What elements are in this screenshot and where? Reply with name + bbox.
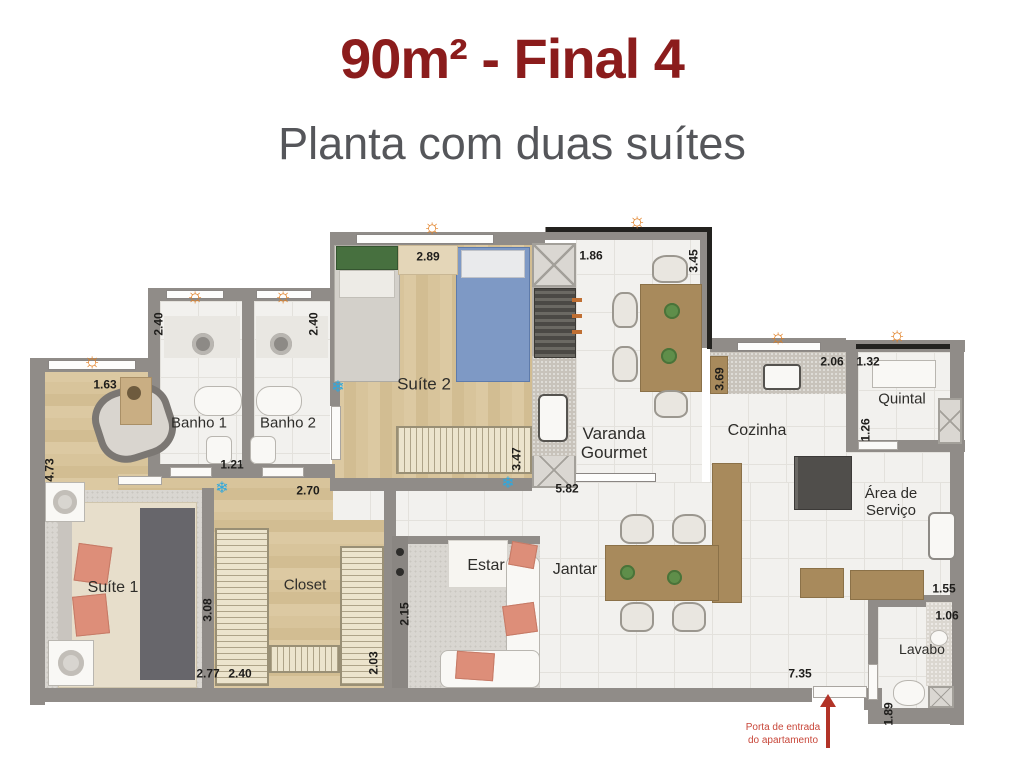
annotations-layer: Banho 1Banho 2Suíte 2Varanda GourmetCozi… [0, 0, 1024, 767]
measurement-2.06: 2.06 [820, 355, 843, 368]
room-label-cozinha: Cozinha [728, 422, 787, 440]
measurement-2.40: 2.40 [307, 312, 320, 335]
sun-icon: ☼ [423, 216, 441, 238]
measurement-7.35: 7.35 [788, 667, 811, 680]
measurement-2.77: 2.77 [196, 667, 219, 680]
room-label-lavabo: Lavabo [899, 642, 945, 658]
measurement-1.06: 1.06 [935, 609, 958, 622]
measurement-1.32: 1.32 [856, 355, 879, 368]
measurement-4.73: 4.73 [43, 458, 56, 481]
measurement-1.26: 1.26 [859, 418, 872, 441]
measurement-1.89: 1.89 [882, 702, 895, 725]
measurement-2.40: 2.40 [228, 667, 251, 680]
snowflake-icon: ❄ [501, 475, 514, 493]
room-label-varanda-gourmet: Varanda Gourmet [581, 424, 647, 462]
measurement-5.82: 5.82 [555, 482, 578, 495]
room-label-suite-2: Suíte 2 [397, 374, 451, 393]
measurement-1.86: 1.86 [579, 249, 602, 262]
measurement-2.15: 2.15 [398, 602, 411, 625]
page: 90m² - Final 4 Planta com duas suítes [0, 0, 1024, 767]
sun-icon: ☼ [888, 324, 906, 346]
room-label-jantar: Jantar [553, 561, 597, 579]
room-label-quintal: Quintal [878, 392, 926, 409]
measurement-3.45: 3.45 [687, 249, 700, 272]
room-label-suite-1: Suíte 1 [88, 579, 139, 597]
room-label-closet: Closet [284, 578, 327, 595]
sun-icon: ☼ [769, 326, 787, 348]
measurement-2.40: 2.40 [152, 312, 165, 335]
measurement-1.55: 1.55 [932, 582, 955, 595]
snowflake-icon: ❄ [331, 379, 344, 397]
measurement-3.69: 3.69 [713, 367, 726, 390]
measurement-1.21: 1.21 [220, 458, 243, 471]
sun-icon: ☼ [628, 210, 646, 232]
sun-icon: ☼ [186, 285, 204, 307]
room-label-estar: Estar [467, 557, 504, 575]
measurement-1.63: 1.63 [93, 378, 116, 391]
room-label-banho-2: Banho 2 [260, 416, 316, 433]
measurement-3.08: 3.08 [201, 598, 214, 621]
measurement-2.89: 2.89 [416, 250, 439, 263]
sun-icon: ☼ [83, 350, 101, 372]
measurement-2.03: 2.03 [367, 651, 380, 674]
sun-icon: ☼ [274, 285, 292, 307]
room-label-banho-1: Banho 1 [171, 416, 227, 433]
measurement-2.70: 2.70 [296, 484, 319, 497]
snowflake-icon: ❄ [215, 480, 228, 498]
floor-plan: Porta de entrada do apartamento Banho 1B… [0, 0, 1024, 767]
room-label-area-de-servico: Área de Serviço [865, 486, 918, 520]
measurement-3.47: 3.47 [510, 447, 523, 470]
